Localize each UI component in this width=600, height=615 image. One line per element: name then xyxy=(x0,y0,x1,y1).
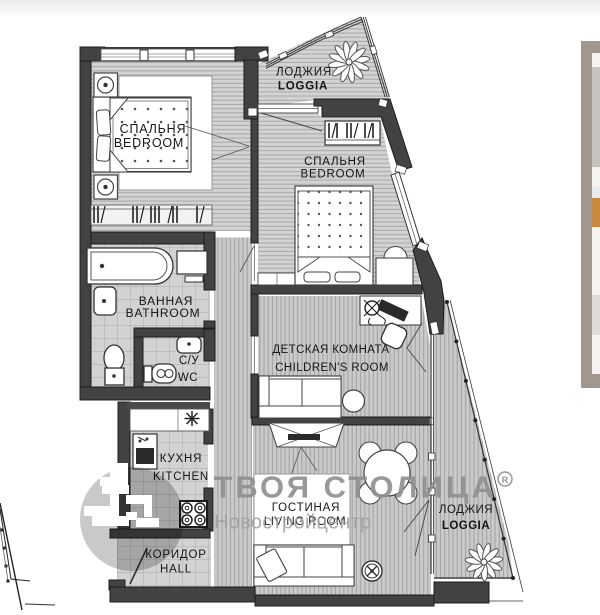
svg-text:HALL: HALL xyxy=(160,564,192,576)
svg-text:BEDROOM: BEDROOM xyxy=(114,136,184,150)
svg-text:LOGGIA: LOGGIA xyxy=(442,520,490,532)
svg-text:BEDROOM: BEDROOM xyxy=(300,169,365,181)
svg-text:WC: WC xyxy=(178,372,198,384)
svg-text:ДЕТСКАЯ КОМНАТА: ДЕТСКАЯ КОМНАТА xyxy=(272,344,389,356)
svg-text:СПАЛЬНЯ: СПАЛЬНЯ xyxy=(120,122,187,136)
svg-text:КУХНЯ: КУХНЯ xyxy=(160,453,202,465)
svg-text:ТВОЯ СТОЛИЦА: ТВОЯ СТОЛИЦА xyxy=(214,470,497,505)
svg-text:С/У: С/У xyxy=(179,355,200,367)
svg-text:СПАЛЬНЯ: СПАЛЬНЯ xyxy=(304,156,366,168)
svg-text:R: R xyxy=(502,475,509,485)
svg-text:LOGGIA: LOGGIA xyxy=(278,81,328,93)
svg-text:ЛОДЖИЯ: ЛОДЖИЯ xyxy=(439,504,493,516)
svg-text:ЛОДЖИЯ: ЛОДЖИЯ xyxy=(276,67,332,79)
svg-text:BATHROOM: BATHROOM xyxy=(126,306,201,320)
svg-text:CHILDREN'S ROOM: CHILDREN'S ROOM xyxy=(275,362,389,374)
svg-text:Новостройцентр: Новостройцентр xyxy=(214,512,372,534)
